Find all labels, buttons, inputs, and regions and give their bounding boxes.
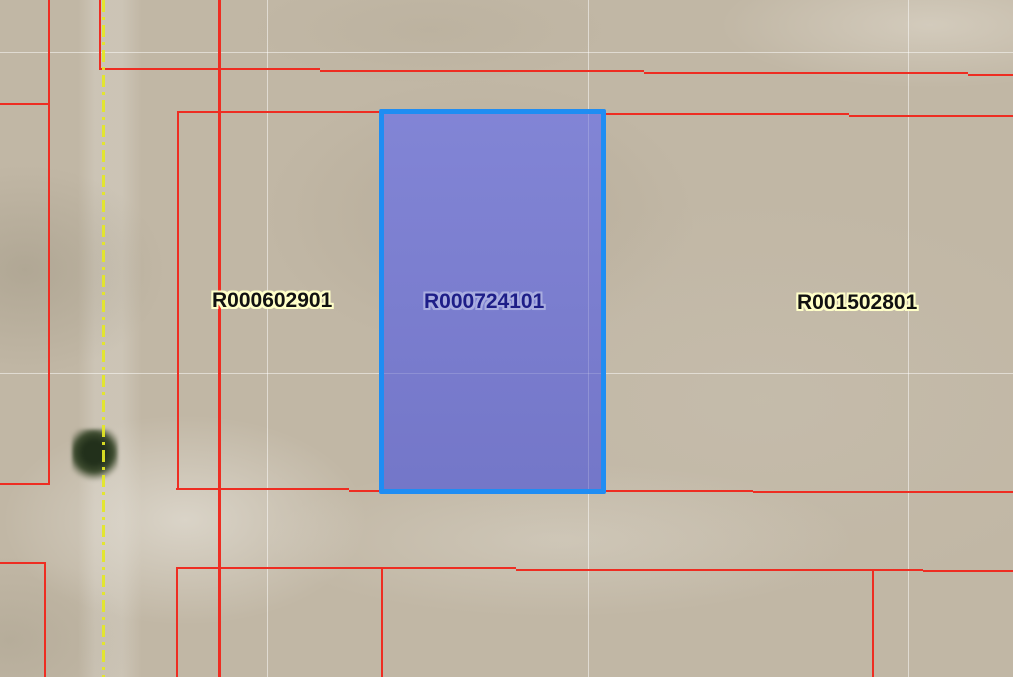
parcel-boundary-line	[968, 74, 1013, 76]
parcel-boundary-line	[381, 567, 383, 677]
parcel-boundary-line	[923, 570, 1013, 572]
parcel-boundary-line	[176, 567, 178, 677]
parcel-boundary-line	[604, 113, 849, 115]
tree-bush	[72, 429, 118, 481]
section-line-vertical	[908, 0, 909, 677]
parcel-boundary-line	[177, 111, 179, 490]
parcel-map-canvas[interactable]: R000602901 R000724101 R001502801	[0, 0, 1013, 677]
section-line-horizontal-overlay	[384, 373, 601, 374]
parcel-boundary-line	[753, 491, 1013, 493]
parcel-boundary-line	[99, 0, 101, 70]
section-line-vertical-overlay	[588, 114, 589, 489]
parcel-boundary-line	[48, 0, 50, 485]
parcel-boundary-line	[176, 567, 516, 569]
parcel-boundary-line	[0, 103, 50, 105]
parcel-boundary-line	[872, 569, 874, 677]
parcel-boundary-line	[0, 562, 46, 564]
parcel-label-left: R000602901	[212, 288, 332, 313]
parcel-boundary-line	[516, 569, 923, 571]
parcel-boundary-line	[99, 68, 320, 70]
section-line-horizontal	[0, 52, 1013, 53]
parcel-label-right: R001502801	[797, 290, 917, 315]
parcel-boundary-line	[178, 111, 381, 113]
parcel-label-selected: R000724101	[424, 289, 544, 314]
parcel-boundary-line	[849, 115, 1013, 117]
parcel-boundary-line	[349, 490, 381, 492]
parcel-boundary-line	[605, 490, 753, 492]
road-centerline	[102, 0, 105, 677]
parcel-boundary-line	[644, 72, 968, 74]
section-line-vertical	[267, 0, 268, 677]
parcel-boundary-line	[0, 483, 50, 485]
parcel-boundary-line	[320, 70, 644, 72]
parcel-boundary-line	[176, 488, 349, 490]
parcel-boundary-line	[44, 562, 46, 677]
parcel-boundary-line	[218, 0, 221, 677]
